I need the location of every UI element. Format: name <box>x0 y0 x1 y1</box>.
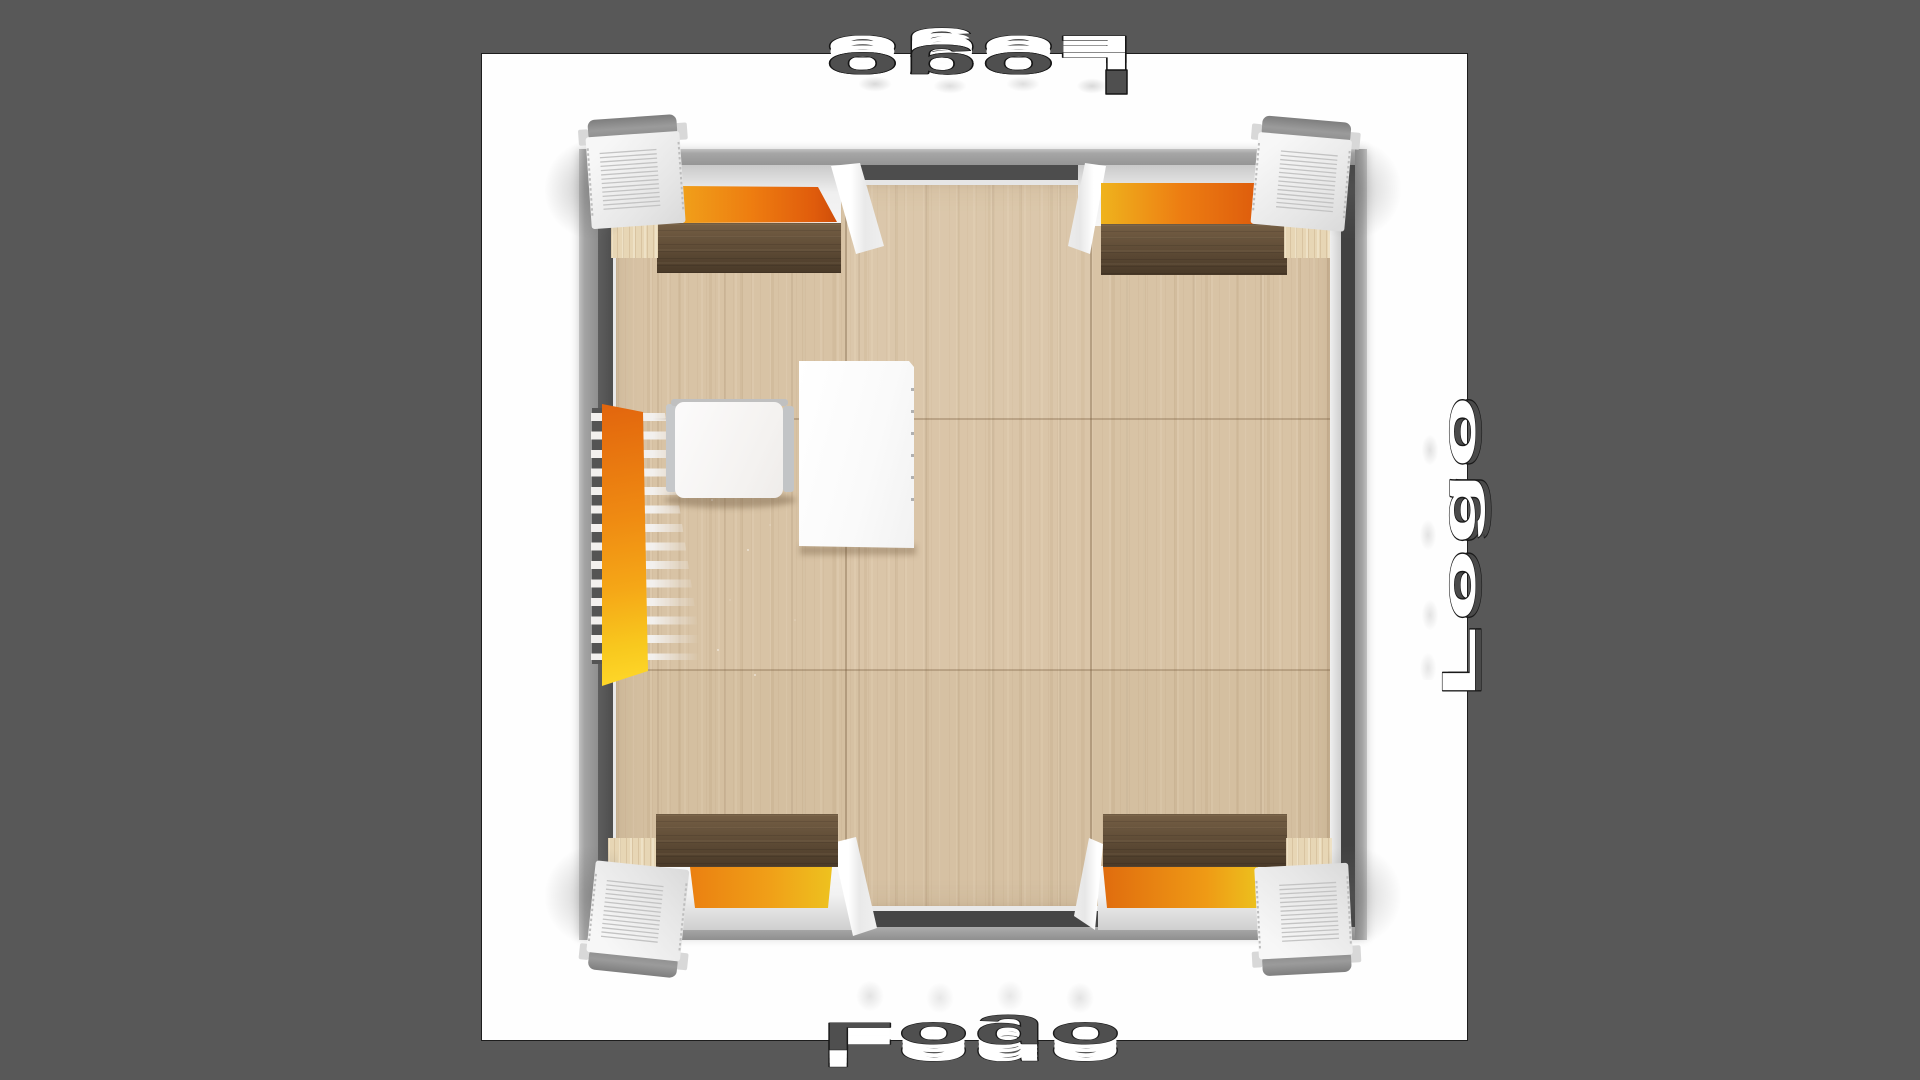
svg-text:Logo: Logo <box>1433 391 1485 698</box>
svg-text:ogo: ogo <box>821 45 1055 88</box>
svg-text:Logo: Logo <box>822 1015 1126 1058</box>
